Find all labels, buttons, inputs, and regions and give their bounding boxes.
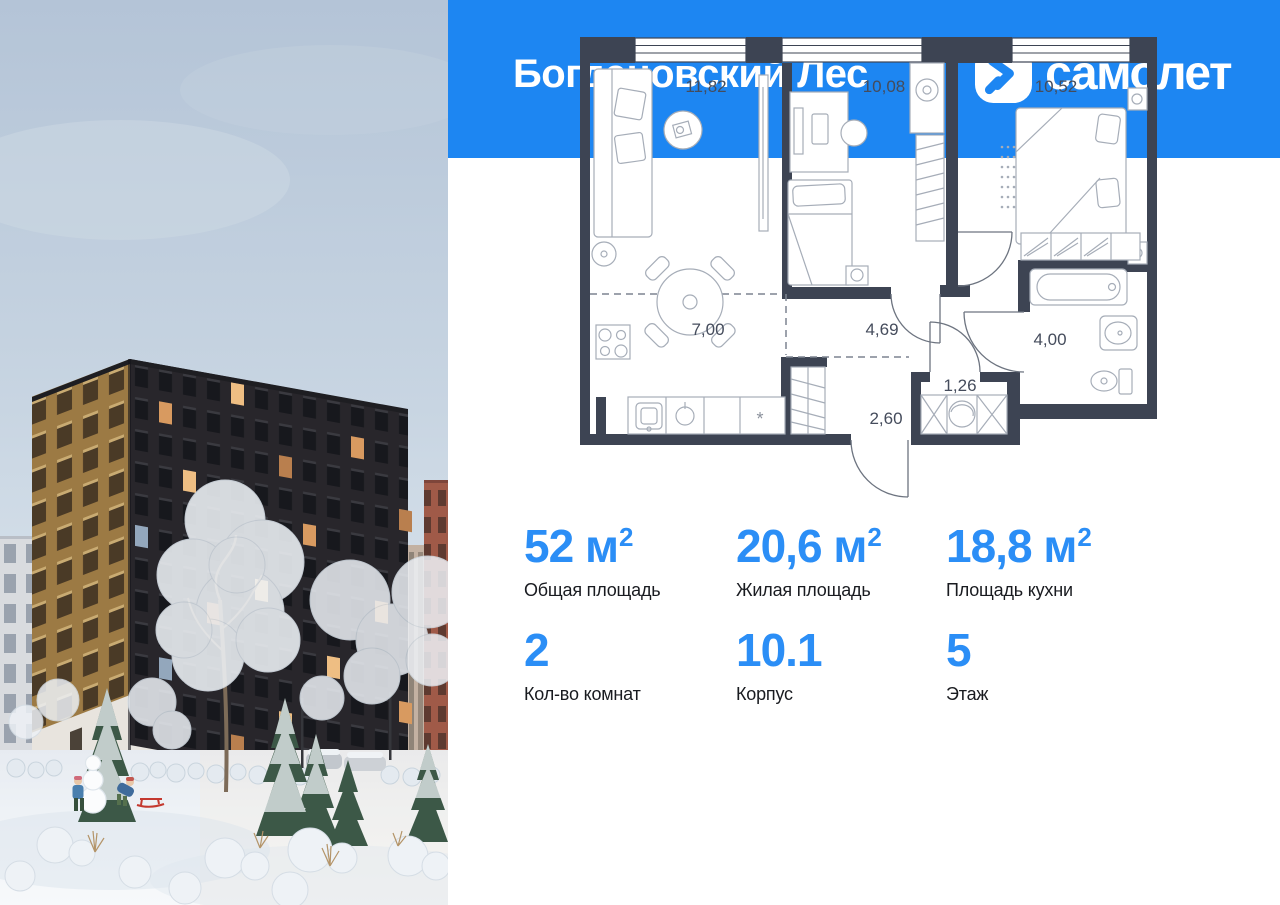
toilet <box>1091 369 1132 394</box>
stat-label: Кол-во комнат <box>524 684 729 705</box>
desk-and-chair <box>790 92 867 172</box>
stove <box>596 325 630 359</box>
stat-value: 18,8 м2 <box>946 522 1151 570</box>
storage-door <box>930 322 980 372</box>
stat-kitchen-area: 18,8 м2 Площадь кухни <box>946 522 1151 601</box>
area-living-room: 11,82 <box>685 77 726 96</box>
bed-double <box>1016 108 1126 244</box>
stat-label: Общая площадь <box>524 580 729 601</box>
stat-label: Корпус <box>736 684 941 705</box>
wall-picture <box>664 111 702 149</box>
kitchen-counter: * <box>628 397 785 434</box>
floor-lamp <box>592 242 616 266</box>
bed-small <box>788 180 852 285</box>
wardrobe-row <box>1021 233 1140 260</box>
stat-rooms: 2 Кол-во комнат <box>524 626 729 705</box>
rug-dots <box>1001 146 1016 209</box>
info-panel: Богдановский Лес самолет <box>448 0 1280 905</box>
stat-value: 10.1 <box>736 626 941 674</box>
svg-text:*: * <box>756 409 763 429</box>
entry-door <box>851 440 908 497</box>
area-storage: 1,26 <box>943 376 976 395</box>
stat-value: 5 <box>946 626 1151 674</box>
stat-building: 10.1 Корпус <box>736 626 941 705</box>
stat-value: 20,6 м2 <box>736 522 941 570</box>
plan-windows <box>635 38 1130 62</box>
plan-furniture: * <box>592 63 1147 434</box>
stat-label: Площадь кухни <box>946 580 1151 601</box>
area-kitchen: 7,00 <box>691 320 724 339</box>
stat-total-area: 52 м2 Общая площадь <box>524 522 729 601</box>
bathtub <box>1030 269 1127 305</box>
hall-wardrobe <box>791 367 825 434</box>
wardrobe-small <box>910 63 944 241</box>
winter-scene <box>0 0 448 905</box>
stat-label: Этаж <box>946 684 1151 705</box>
sofa <box>594 69 652 237</box>
open-plan-dashes <box>590 294 909 357</box>
stat-value: 2 <box>524 626 729 674</box>
stat-floor: 5 Этаж <box>946 626 1151 705</box>
area-corridor: 2,60 <box>869 409 902 428</box>
area-master-bedroom: 10,52 <box>1035 77 1078 96</box>
master-bedroom-door <box>958 232 1012 286</box>
door-swings <box>851 232 1024 497</box>
stat-living-area: 20,6 м2 Жилая площадь <box>736 522 941 601</box>
floor-plan-drawing: * <box>578 37 1158 507</box>
storage-units <box>921 395 1007 434</box>
floor-plan: * <box>578 37 1158 507</box>
complex-photo <box>0 0 448 905</box>
washbasin <box>1100 316 1137 350</box>
tv-panel <box>759 75 768 231</box>
area-bathroom: 4,00 <box>1033 330 1066 349</box>
bathroom-door <box>964 312 1024 372</box>
stat-label: Жилая площадь <box>736 580 941 601</box>
listing-card: Богдановский Лес самолет <box>0 0 1280 905</box>
area-bedroom: 10,08 <box>863 77 906 96</box>
bedside-stool <box>846 266 868 285</box>
area-hallway: 4,69 <box>865 320 898 339</box>
stat-value: 52 м2 <box>524 522 729 570</box>
